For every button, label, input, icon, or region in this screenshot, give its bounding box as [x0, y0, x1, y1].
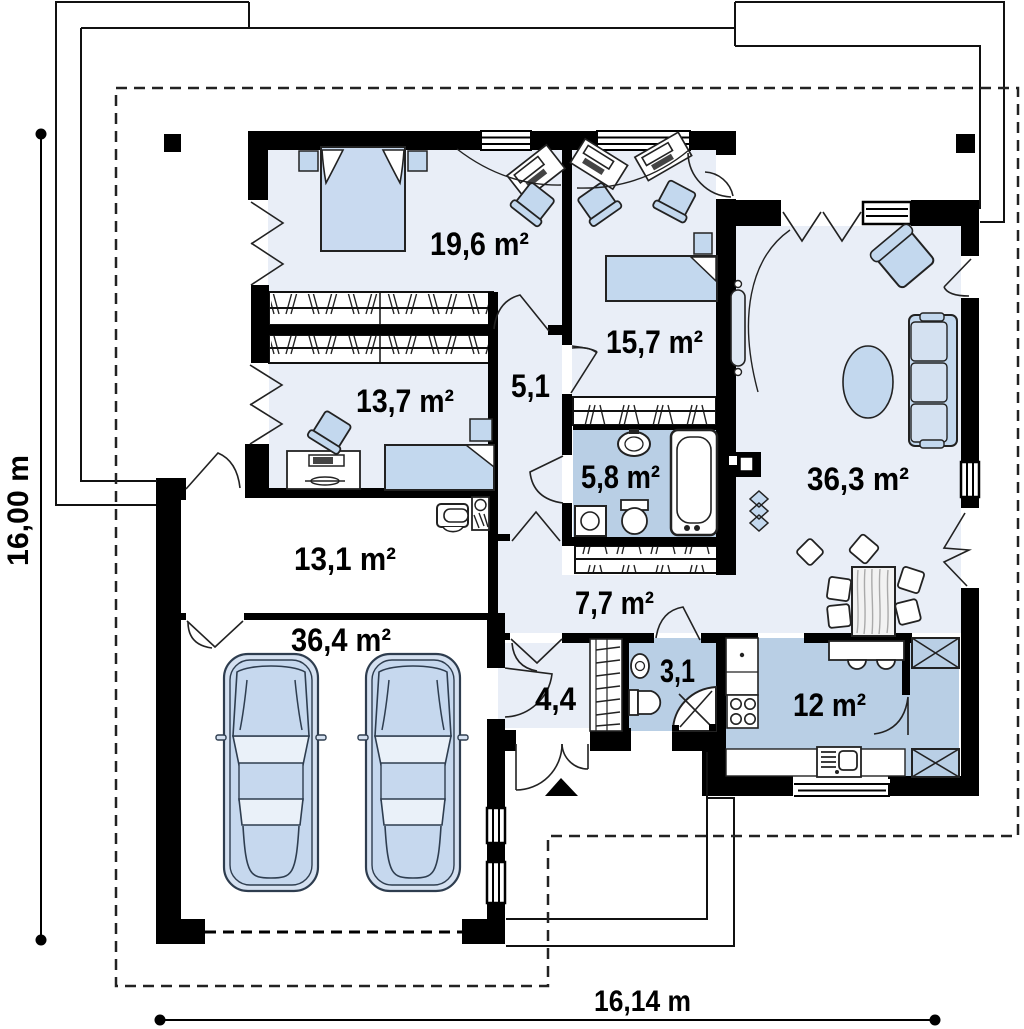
svg-text:19,6 m²: 19,6 m²: [430, 226, 529, 262]
svg-text:13,7 m²: 13,7 m²: [356, 383, 454, 419]
svg-text:36,3 m²: 36,3 m²: [807, 461, 909, 497]
svg-text:4,4: 4,4: [535, 681, 576, 717]
svg-text:3,1: 3,1: [660, 653, 695, 689]
svg-text:16,00 m: 16,00 m: [2, 455, 35, 566]
svg-text:12 m²: 12 m²: [793, 687, 866, 723]
svg-text:7,7 m²: 7,7 m²: [575, 585, 654, 621]
svg-text:15,7 m²: 15,7 m²: [606, 324, 703, 360]
svg-text:13,1 m²: 13,1 m²: [294, 541, 396, 577]
svg-text:5,1: 5,1: [511, 368, 550, 404]
svg-text:16,14 m: 16,14 m: [594, 985, 691, 1018]
svg-text:36,4 m²: 36,4 m²: [291, 622, 391, 658]
svg-text:5,8 m²: 5,8 m²: [581, 459, 660, 495]
